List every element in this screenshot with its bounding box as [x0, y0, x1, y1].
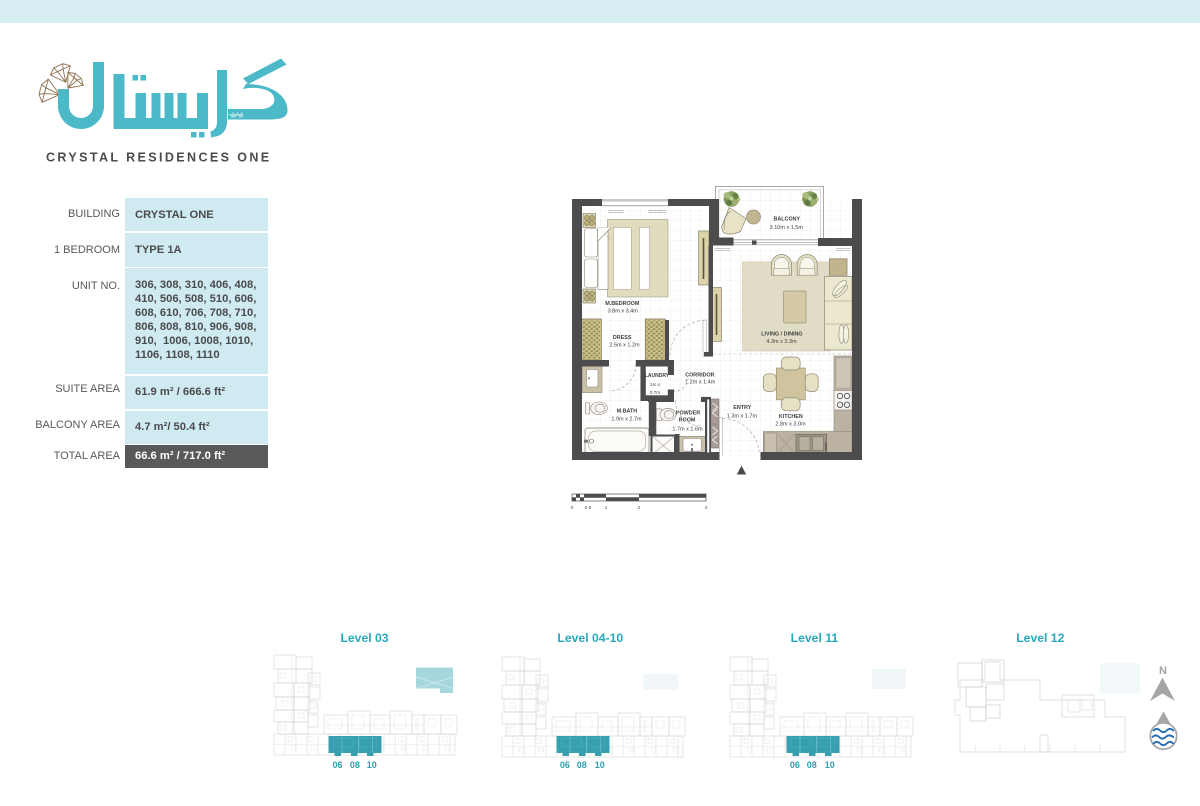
svg-text:1.3m x 1.7m: 1.3m x 1.7m [727, 413, 758, 419]
svg-text:POWDER: POWDER [676, 410, 700, 416]
svg-text:1.2m x 1.4m: 1.2m x 1.4m [685, 380, 716, 386]
svg-text:10: 10 [367, 760, 377, 770]
svg-text:4: 4 [705, 505, 708, 511]
svg-text:06: 06 [332, 760, 342, 770]
svg-text:BALCONY: BALCONY [773, 216, 800, 222]
svg-text:M.BEDROOM: M.BEDROOM [605, 301, 640, 307]
svg-text:08: 08 [577, 760, 587, 770]
svg-text:Level 11: Level 11 [791, 631, 839, 645]
svg-text:0.7m: 0.7m [650, 390, 660, 395]
svg-text:M.BATH: M.BATH [617, 408, 638, 414]
svg-text:0: 0 [571, 505, 574, 511]
svg-text:CRYSTAL RESIDENCES ONE: CRYSTAL RESIDENCES ONE [46, 151, 272, 165]
svg-text:Level 04-10: Level 04-10 [557, 631, 623, 645]
svg-text:Level 12: Level 12 [1016, 631, 1064, 645]
svg-text:DRESS: DRESS [613, 335, 632, 341]
svg-text:08: 08 [350, 760, 360, 770]
svg-text:3.8m x 3.4m: 3.8m x 3.4m [608, 308, 639, 314]
svg-text:1: 1 [605, 505, 608, 511]
svg-text:06: 06 [560, 760, 570, 770]
svg-text:ROOM: ROOM [679, 417, 696, 423]
svg-text:LIVING / DINING: LIVING / DINING [761, 331, 802, 337]
svg-text:LAUNDRY: LAUNDRY [645, 373, 670, 379]
svg-text:2: 2 [638, 505, 641, 511]
svg-text:1.7m x 1.6m: 1.7m x 1.6m [672, 426, 703, 432]
svg-text:CORRIDOR: CORRIDOR [685, 372, 714, 378]
svg-text:06: 06 [790, 760, 800, 770]
svg-text:0.5: 0.5 [585, 505, 592, 511]
svg-text:4.3m x 3.3m: 4.3m x 3.3m [766, 339, 797, 345]
svg-text:10: 10 [825, 760, 835, 770]
svg-text:N: N [1159, 665, 1167, 677]
svg-text:1m x: 1m x [650, 382, 661, 387]
svg-text:Level 03: Level 03 [340, 631, 388, 645]
svg-text:08: 08 [807, 760, 817, 770]
svg-text:10: 10 [595, 760, 605, 770]
svg-text:2.5m x 1.2m: 2.5m x 1.2m [609, 342, 640, 348]
svg-text:1.9m x 2.7m: 1.9m x 2.7m [611, 417, 642, 423]
svg-text:ENTRY: ENTRY [733, 405, 751, 411]
svg-text:2.8m x 3.0m: 2.8m x 3.0m [775, 421, 806, 427]
svg-text:KITCHEN: KITCHEN [779, 414, 803, 420]
svg-text:3.10m x 1.5m: 3.10m x 1.5m [770, 225, 804, 231]
